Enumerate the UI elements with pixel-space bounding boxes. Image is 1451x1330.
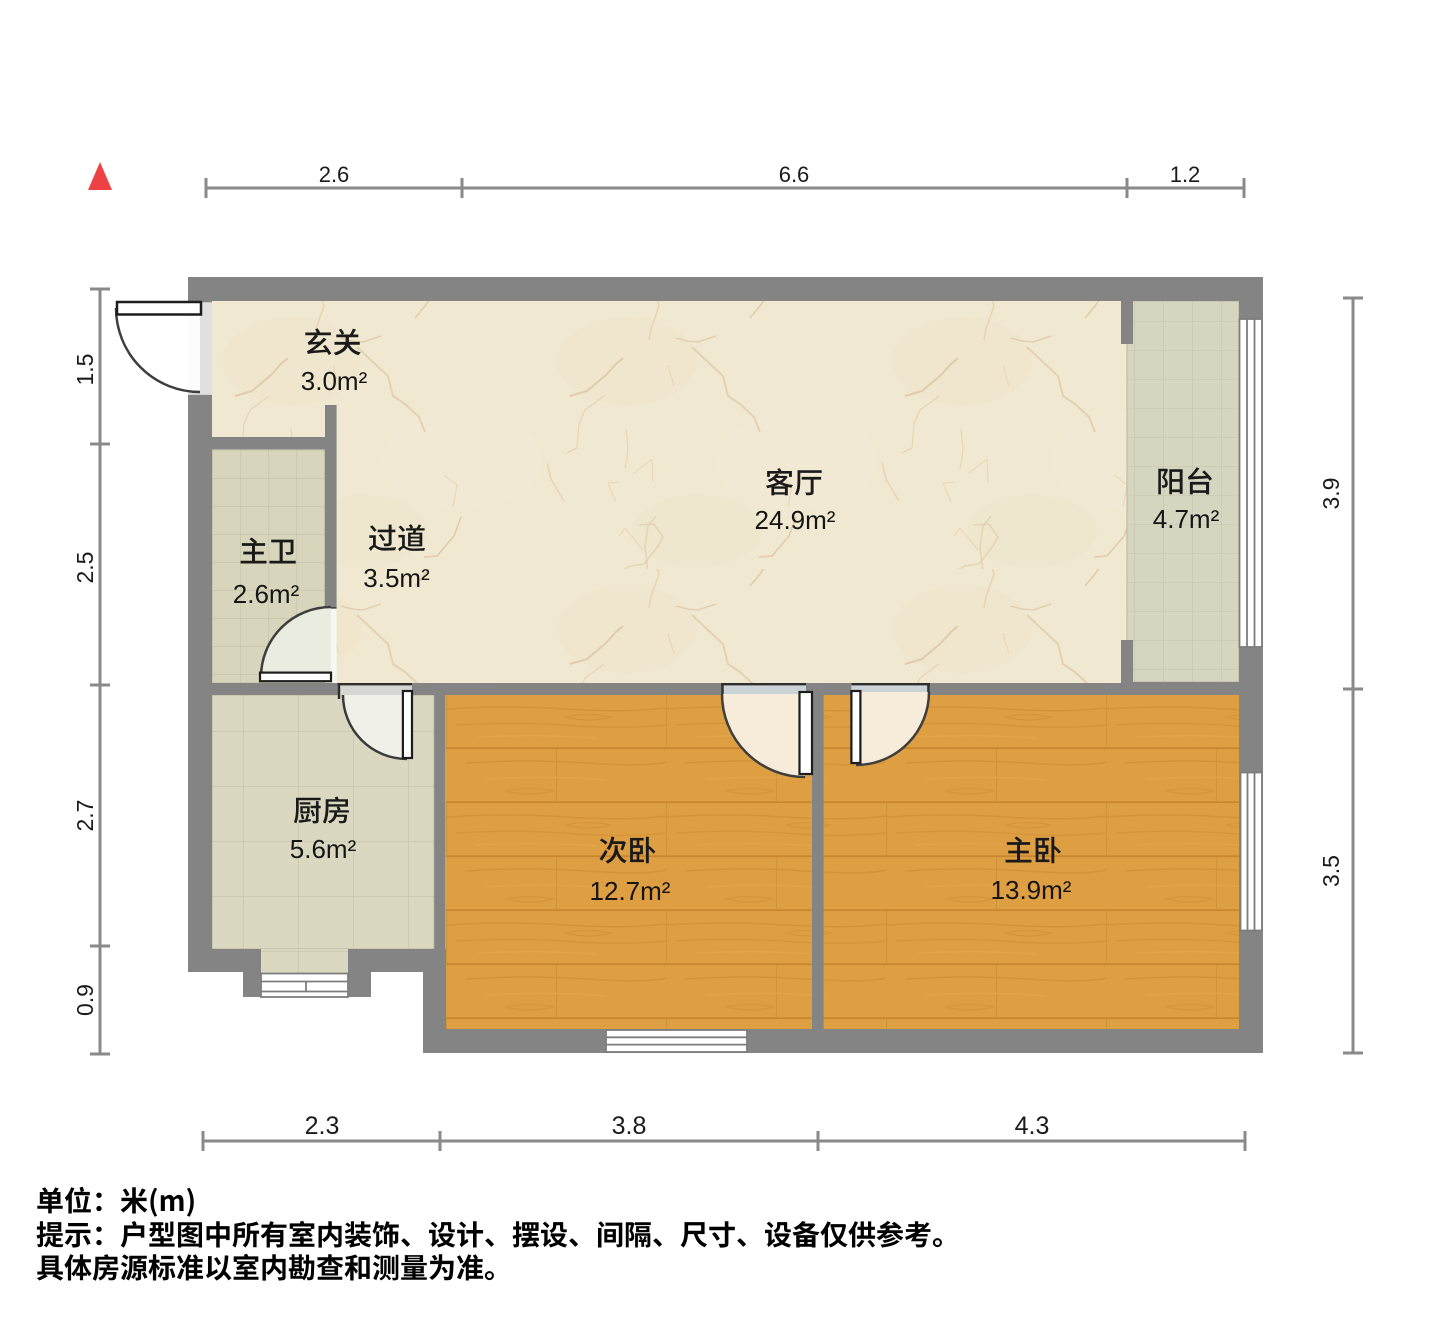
svg-text:5.6m²: 5.6m² (290, 834, 357, 864)
svg-text:3.0m²: 3.0m² (301, 366, 368, 396)
svg-text:2.6m²: 2.6m² (233, 579, 300, 609)
svg-text:3.9: 3.9 (1318, 478, 1344, 510)
svg-text:1.5: 1.5 (72, 354, 98, 386)
svg-text:12.7m²: 12.7m² (590, 876, 671, 906)
svg-text:3.8: 3.8 (612, 1112, 647, 1140)
svg-text:2.5: 2.5 (72, 552, 98, 584)
svg-text:3.5m²: 3.5m² (363, 563, 430, 593)
svg-text:3.5: 3.5 (1318, 855, 1344, 887)
svg-text:2.7: 2.7 (72, 800, 98, 832)
svg-text:6.6: 6.6 (779, 162, 810, 187)
svg-text:24.9m²: 24.9m² (755, 505, 836, 535)
svg-text:13.9m²: 13.9m² (991, 875, 1072, 905)
svg-text:1.2: 1.2 (1170, 162, 1201, 187)
svg-text:2.6: 2.6 (319, 162, 350, 187)
svg-text:4.7m²: 4.7m² (1153, 504, 1220, 534)
svg-text:2.3: 2.3 (305, 1112, 340, 1140)
svg-text:0.9: 0.9 (72, 984, 98, 1016)
svg-text:4.3: 4.3 (1015, 1112, 1050, 1140)
